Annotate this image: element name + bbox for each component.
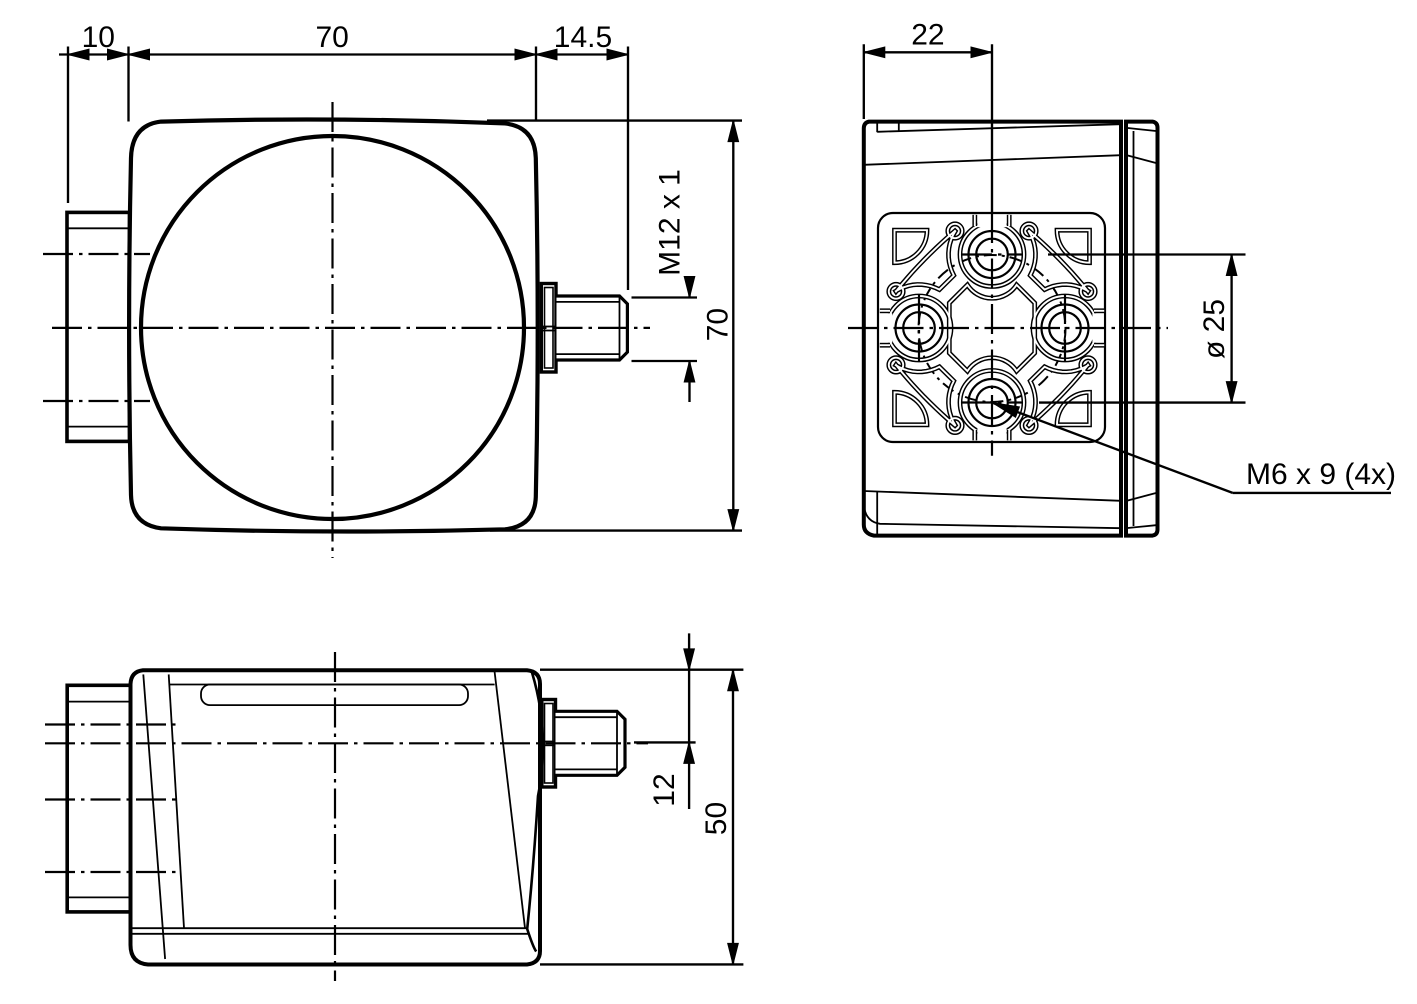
svg-text:70: 70 (316, 21, 349, 54)
svg-text:70: 70 (702, 308, 735, 341)
svg-text:14.5: 14.5 (554, 21, 612, 54)
svg-text:22: 22 (911, 19, 944, 52)
svg-text:M12 x 1: M12 x 1 (654, 169, 687, 276)
svg-text:ø 25: ø 25 (1198, 299, 1231, 359)
svg-text:10: 10 (82, 21, 115, 54)
svg-text:M6 x 9 (4x): M6 x 9 (4x) (1246, 458, 1396, 491)
svg-text:12: 12 (648, 773, 681, 806)
svg-text:50: 50 (700, 802, 733, 835)
